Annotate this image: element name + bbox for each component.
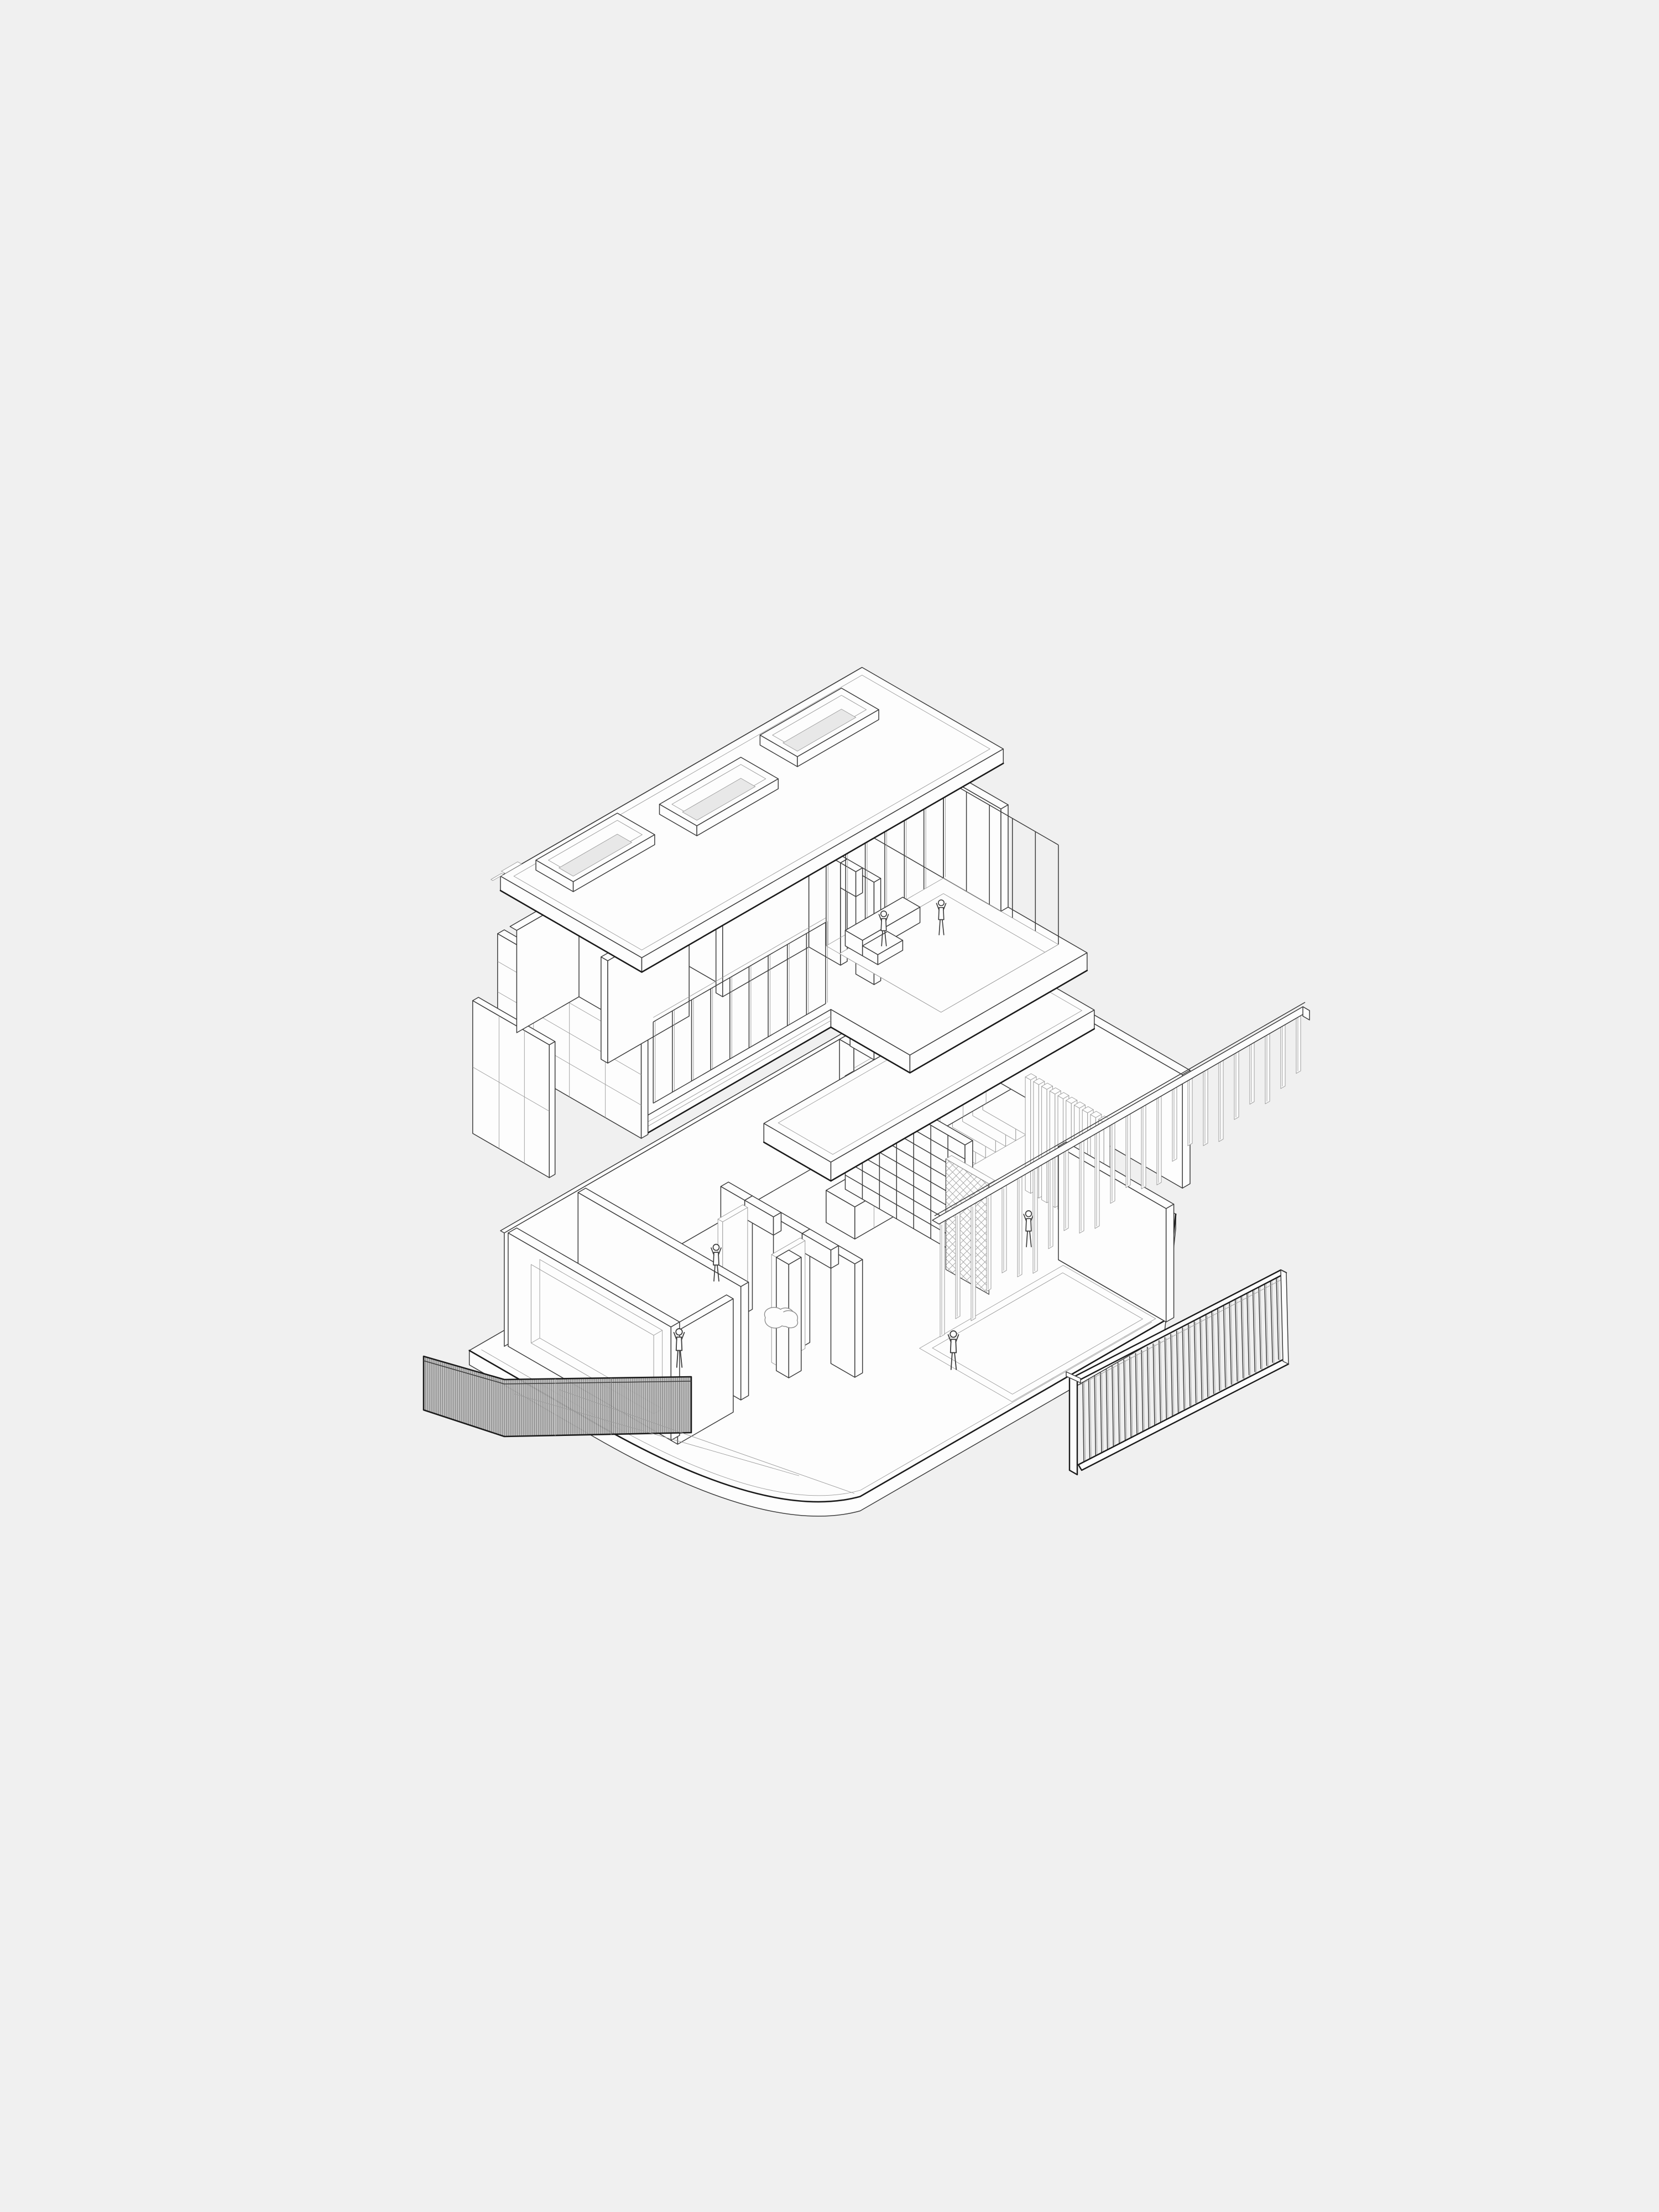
- drawing-canvas: [0, 0, 1659, 2212]
- exploded-axonometric-drawing: [0, 0, 1659, 2212]
